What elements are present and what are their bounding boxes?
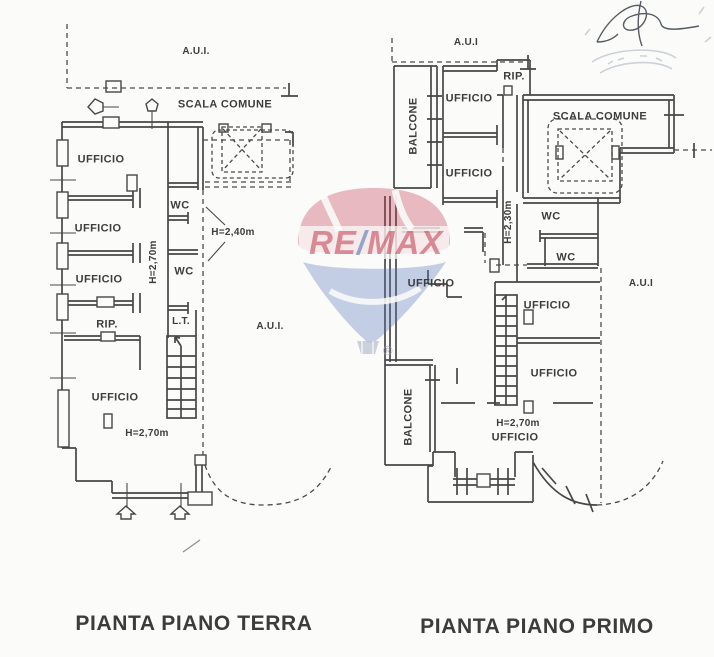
handwritten-signature [597,1,699,46]
label-ufficio-4-primo: UFFICIO [524,301,571,312]
label-ufficio-6-primo: UFFICIO [492,433,539,444]
label-height-wc-terra: H=2,40m [211,228,255,238]
label-aui-right-terra: A.U.I. [256,322,283,332]
registered-mark: ® [383,343,393,358]
label-ufficio-4-terra: UFFICIO [92,393,139,404]
label-aui-top-terra: A.U.I. [182,47,209,57]
label-ufficio-5-primo: UFFICIO [531,369,578,380]
scanned-floorplan-page: RE/MAX ® A.U.I. SCALA COMUNE UFFICIO WC … [0,0,714,657]
label-wc-1-terra: WC [170,201,189,212]
label-wc-2-terra: WC [174,267,193,278]
label-ufficio-2-primo: UFFICIO [446,169,493,180]
plan-title-terra: PIANTA PIANO TERRA [75,612,312,636]
primo-dashed-boundaries [392,38,712,505]
label-wc-2-primo: WC [556,253,575,264]
label-scala-comune-primo: SCALA COMUNE [553,112,647,123]
remax-wordmark: RE/MAX [309,224,444,261]
label-lt-terra: L.T. [172,317,190,327]
plan-title-primo: PIANTA PIANO PRIMO [420,615,654,639]
label-ufficio-3-terra: UFFICIO [76,275,123,286]
label-ufficio-2-terra: UFFICIO [75,224,122,235]
stray-pen-mark [183,540,200,552]
balloon-basket [357,341,379,354]
label-balcone-bottom-primo: BALCONE [404,388,415,445]
label-height-room-terra: H=2,70m [125,429,169,439]
label-balcone-top-primo: BALCONE [409,97,420,154]
label-ufficio-1-terra: UFFICIO [78,155,125,166]
label-rip-terra: RIP. [96,320,118,331]
label-wc-1-primo: WC [541,212,560,223]
label-height-corridor-terra: H=2,70m [149,240,159,284]
label-rip-primo: RIP. [503,72,525,83]
label-height-corridor-primo: H=2,30m [504,200,514,244]
label-height-room-primo: H=2,70m [496,419,540,429]
label-ufficio-3-primo: UFFICIO [408,279,455,290]
label-scala-comune-terra: SCALA COMUNE [178,100,272,111]
faint-stamp [585,7,711,73]
label-aui-right-primo: A.U.I [629,279,653,289]
label-ufficio-1-primo: UFFICIO [446,94,493,105]
remax-balloon-watermark: RE/MAX ® [298,188,450,358]
label-aui-top-primo: A.U.I [454,38,478,48]
